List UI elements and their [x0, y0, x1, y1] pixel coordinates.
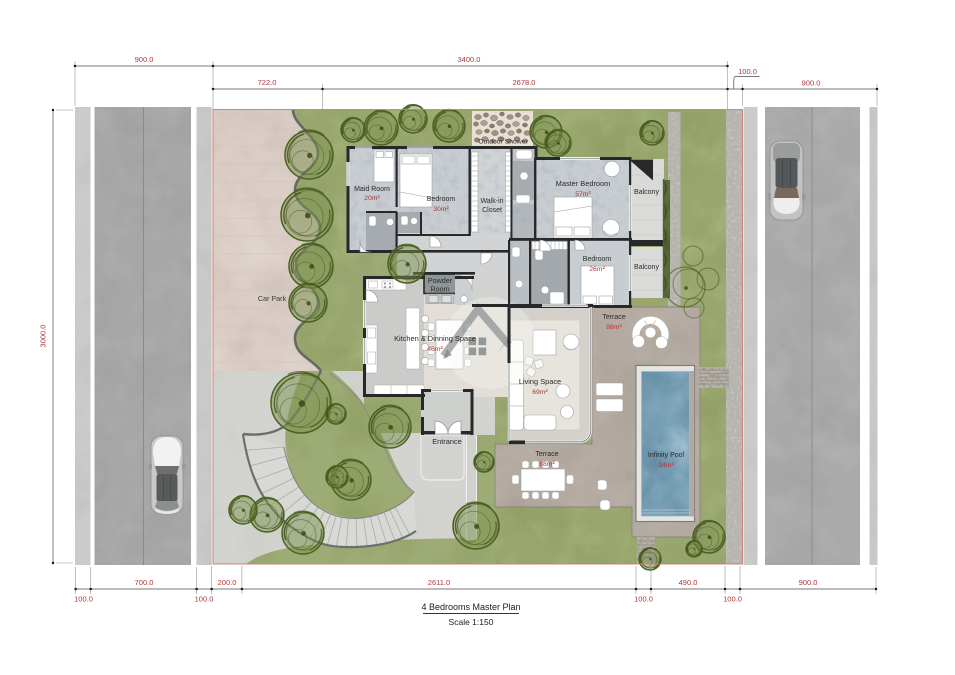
svg-text:30m²: 30m²	[433, 206, 449, 213]
svg-text:4 Bedrooms Master Plan: 4 Bedrooms Master Plan	[421, 602, 520, 612]
svg-text:Closet: Closet	[482, 207, 502, 214]
svg-text:100.0: 100.0	[738, 67, 757, 76]
svg-text:Balcony: Balcony	[634, 264, 659, 271]
svg-text:34m²: 34m²	[658, 462, 674, 469]
svg-text:900.0: 900.0	[135, 55, 154, 64]
svg-text:Living Space: Living Space	[519, 377, 561, 386]
svg-text:Room: Room	[430, 285, 449, 294]
svg-text:Terrace: Terrace	[535, 451, 558, 458]
svg-text:100.0: 100.0	[195, 595, 214, 604]
svg-text:722.0: 722.0	[258, 78, 277, 87]
svg-text:100.0: 100.0	[74, 595, 93, 604]
svg-text:700.0: 700.0	[135, 578, 154, 587]
svg-text:100.0: 100.0	[723, 595, 742, 604]
svg-text:3000.0: 3000.0	[39, 325, 48, 348]
svg-text:69m²: 69m²	[532, 389, 548, 396]
svg-text:2611.0: 2611.0	[428, 578, 450, 587]
svg-text:26m²: 26m²	[589, 266, 605, 273]
svg-text:200.0: 200.0	[218, 578, 237, 587]
svg-text:Master Bedroom: Master Bedroom	[556, 179, 611, 188]
svg-text:20m²: 20m²	[364, 195, 380, 202]
svg-text:900.0: 900.0	[802, 79, 821, 88]
svg-text:88m²: 88m²	[539, 461, 555, 468]
svg-text:Bedroom: Bedroom	[583, 256, 612, 263]
svg-text:3400.0: 3400.0	[458, 55, 481, 64]
svg-text:88m²: 88m²	[606, 324, 622, 331]
svg-text:Infinity Pool: Infinity Pool	[648, 452, 685, 459]
svg-text:490.0: 490.0	[679, 578, 698, 587]
svg-text:46m²: 46m²	[427, 346, 443, 353]
svg-text:Entrance: Entrance	[432, 437, 462, 446]
svg-text:Kitchen & Dinning Space: Kitchen & Dinning Space	[394, 334, 476, 343]
svg-text:57m²: 57m²	[575, 191, 591, 198]
svg-text:900.0: 900.0	[799, 578, 818, 587]
svg-text:Bedroom: Bedroom	[427, 196, 456, 203]
svg-text:Walk-in: Walk-in	[480, 198, 503, 205]
svg-text:Maid Room: Maid Room	[354, 186, 390, 193]
svg-text:Scale 1:150: Scale 1:150	[449, 617, 494, 627]
svg-text:Terrace: Terrace	[602, 314, 625, 321]
svg-text:Car Park: Car Park	[258, 294, 287, 303]
svg-text:Balcony: Balcony	[634, 189, 659, 196]
svg-text:100.0: 100.0	[634, 595, 653, 604]
svg-text:2678.0: 2678.0	[513, 78, 536, 87]
svg-text:Outdoor Shower: Outdoor Shower	[478, 139, 528, 146]
